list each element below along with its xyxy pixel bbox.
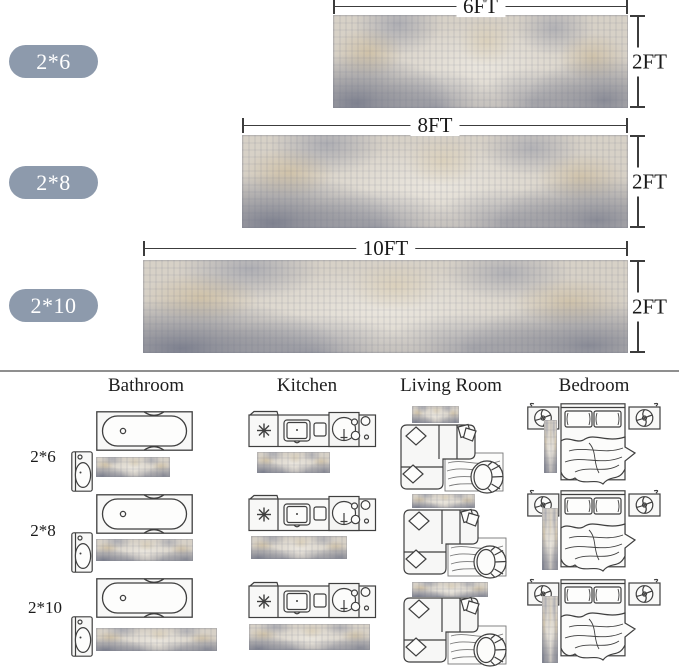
size-pill-2x10: 2*10 xyxy=(9,289,98,322)
width-dimension-10ft: 10FT xyxy=(143,241,628,257)
dimension-tick xyxy=(626,0,628,14)
width-dimension-label: 6FT xyxy=(456,0,505,17)
height-dimension-label: 2FT xyxy=(631,167,667,196)
bedroom-rug-2x6 xyxy=(544,420,557,473)
rug-photo-8ft xyxy=(242,135,628,228)
living-room-rug-2x10 xyxy=(412,582,488,597)
kitchen-counter-icon xyxy=(248,410,376,448)
living-room-rug-2x8 xyxy=(412,494,475,508)
dimension-tick xyxy=(626,118,628,133)
width-dimension-label: 8FT xyxy=(410,115,459,136)
dimension-tick xyxy=(626,241,628,256)
sofa-icon xyxy=(402,508,510,578)
kitchen-counter-icon xyxy=(248,581,376,619)
row-label-2x10: 2*10 xyxy=(28,598,62,618)
size-pill-2x8: 2*8 xyxy=(9,166,98,199)
bedroom-rug-2x8 xyxy=(542,508,558,570)
row-label-2x8: 2*8 xyxy=(30,521,56,541)
kitchen-counter-icon xyxy=(248,494,376,532)
kitchen-rug-2x10 xyxy=(249,624,370,650)
living-room-rug-2x6 xyxy=(412,406,459,423)
height-dimension-10ft: 2FT xyxy=(630,260,664,353)
toilet-icon xyxy=(71,532,93,573)
bathroom-rug-2x8 xyxy=(96,539,193,561)
kitchen-rug-2x6 xyxy=(257,452,330,473)
column-header-bedroom: Bedroom xyxy=(559,375,630,397)
rug-size-guide-image: 2*6 6FT 2FT 2*8 8FT 2FT 2*10 10FT xyxy=(0,0,679,667)
dimension-tick xyxy=(333,0,335,14)
column-header-kitchen: Kitchen xyxy=(277,375,337,397)
bathroom-rug-2x10 xyxy=(96,628,217,651)
toilet-icon xyxy=(71,616,93,657)
section-divider xyxy=(0,370,679,372)
size-pill-2x6: 2*6 xyxy=(9,45,98,78)
toilet-icon xyxy=(71,451,93,492)
dimension-tick xyxy=(630,226,645,228)
column-header-bathroom: Bathroom xyxy=(108,375,184,397)
sofa-icon xyxy=(399,423,507,493)
bathtub-icon xyxy=(96,411,193,451)
height-dimension-label: 2FT xyxy=(631,47,667,76)
column-header-living-room: Living Room xyxy=(400,375,502,397)
width-dimension-8ft: 8FT xyxy=(242,118,628,134)
row-label-2x6: 2*6 xyxy=(30,447,56,467)
dimension-tick xyxy=(630,351,645,353)
height-dimension-6ft: 2FT xyxy=(630,15,664,108)
sofa-icon xyxy=(402,596,510,666)
bathtub-icon xyxy=(96,494,193,534)
bathtub-icon xyxy=(96,578,193,618)
bathroom-rug-2x6 xyxy=(96,457,170,477)
rug-photo-6ft xyxy=(333,15,628,108)
bedroom-rug-2x10 xyxy=(542,596,558,663)
width-dimension-label: 10FT xyxy=(356,238,416,259)
kitchen-rug-2x8 xyxy=(251,536,347,559)
height-dimension-8ft: 2FT xyxy=(630,135,664,228)
width-dimension-6ft: 6FT xyxy=(333,0,628,15)
height-dimension-label: 2FT xyxy=(631,292,667,321)
dimension-tick xyxy=(630,106,645,108)
rug-photo-10ft xyxy=(143,260,628,353)
